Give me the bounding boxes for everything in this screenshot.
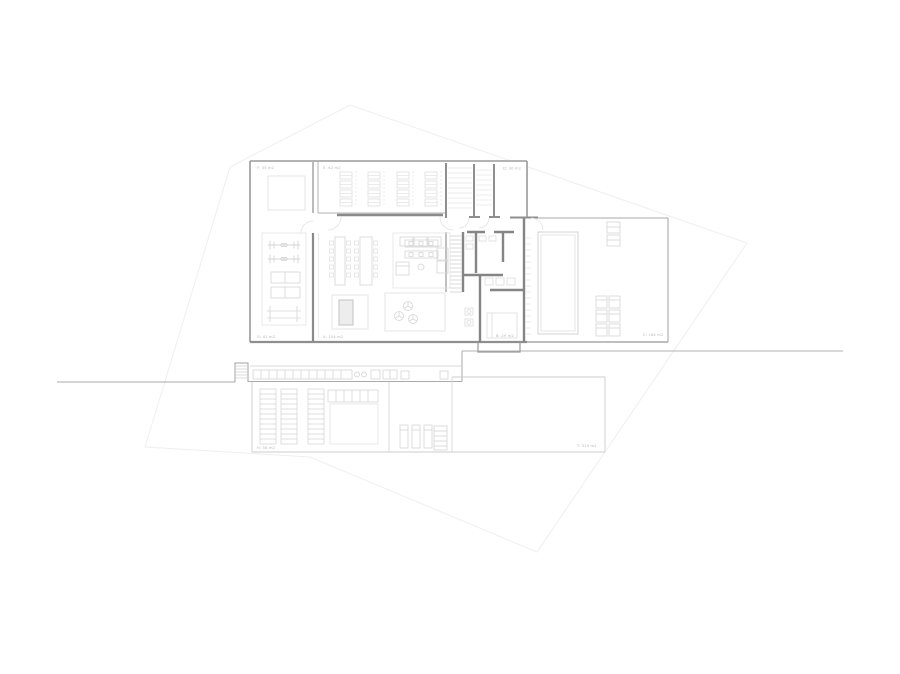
area-label: D: 30 m2 — [503, 167, 521, 171]
floor-plan-page: F: 35 m2 E: 62 m2 D: 30 m2 G: 41 m2 A: 1… — [0, 0, 900, 674]
floor-plan-drawing: F: 35 m2 E: 62 m2 D: 30 m2 G: 41 m2 A: 1… — [0, 0, 900, 674]
area-label: H: 58 m2 — [257, 446, 275, 450]
main-staircase — [450, 236, 462, 292]
area-label: E: 62 m2 — [323, 166, 341, 170]
area-label: T: 310 m2 — [576, 444, 597, 448]
area-label: F: 35 m2 — [257, 166, 274, 170]
area-label: A: 154 m2 — [323, 335, 343, 339]
area-label: B: 29 m2 — [496, 334, 514, 338]
area-label: C: 164 m2 — [643, 333, 663, 337]
area-label: G: 41 m2 — [257, 335, 275, 339]
